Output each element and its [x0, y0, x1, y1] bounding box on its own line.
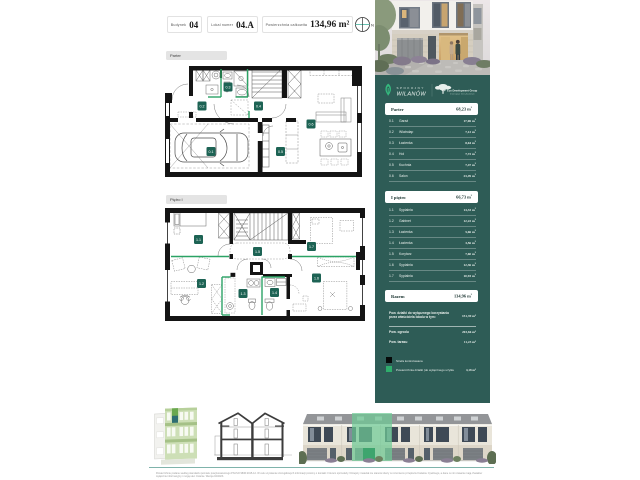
svg-text:0.2: 0.2	[200, 104, 205, 108]
svg-text:WILANÓW: WILANÓW	[397, 91, 427, 98]
svg-text:0.4: 0.4	[256, 104, 261, 108]
svg-text:Eco Development Group: Eco Development Group	[447, 89, 478, 93]
svg-text:1.5: 1.5	[255, 250, 260, 254]
svg-text:1.4: 1.4	[272, 291, 277, 295]
svg-text:Inwestycje mieszkaniowe: Inwestycje mieszkaniowe	[450, 93, 475, 96]
svg-text:0.3: 0.3	[226, 85, 231, 89]
svg-text:1.3: 1.3	[241, 292, 246, 296]
svg-text:1.1: 1.1	[196, 238, 201, 242]
svg-text:1.2: 1.2	[199, 282, 204, 286]
svg-text:N: N	[371, 23, 374, 28]
svg-text:1.6: 1.6	[314, 276, 319, 280]
svg-text:0.6: 0.6	[309, 122, 314, 126]
svg-text:0.5: 0.5	[278, 150, 283, 154]
svg-text:0.1: 0.1	[209, 150, 214, 154]
svg-text:1.7: 1.7	[309, 245, 314, 249]
svg-text:SPOKOJNY: SPOKOJNY	[397, 86, 425, 90]
